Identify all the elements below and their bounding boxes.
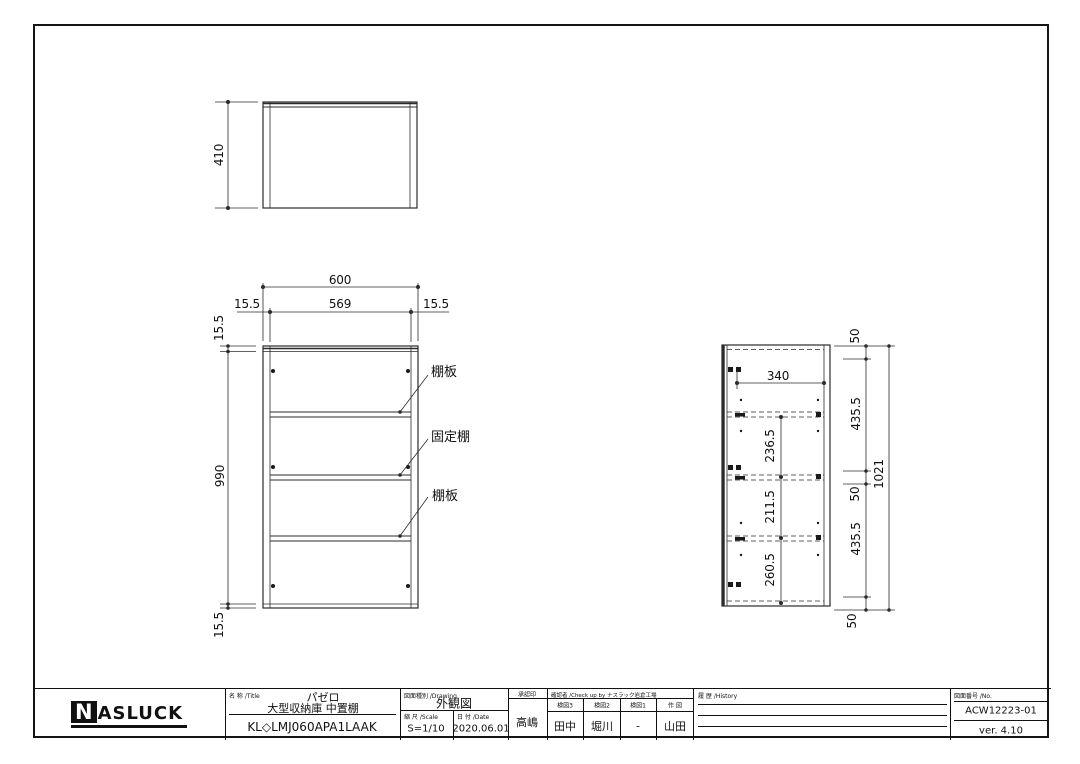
dim-front-inner-width: 569 [329,297,351,311]
title-block-divider [508,698,547,699]
dim-side-segment-lower: 435.5 [849,522,863,555]
title-block-divider [656,698,657,740]
title-block-divider [954,720,1048,721]
label-shelf-lower: 棚板 [432,485,458,504]
title-block-divider [583,698,584,740]
history-row-line [698,715,947,716]
check-col-value: 田中 [554,718,576,734]
front-view-outline [263,346,418,608]
drawing-version: ver. 4.10 [979,726,1023,737]
title-block-divider [954,701,1048,702]
history-row-line [698,726,947,727]
drawing-type: 外観図 [436,695,472,712]
drawing-no: ACW12223-01 [965,706,1037,717]
dim-side-segment-top: 50 [848,329,862,344]
approval-name: 高嶋 [516,714,538,730]
dim-front-overall-height: 990 [213,465,227,487]
title-block-divider [400,689,401,740]
label-shelf-upper: 棚板 [431,361,457,380]
history-row-line [698,704,947,705]
dim-side-overall-height: 1021 [872,459,886,489]
dim-front-right-thickness: 15.5 [423,297,449,311]
dim-front-top-thickness: 15.5 [212,315,226,341]
dim-front-overall-width: 600 [329,273,351,287]
dim-side-opening-middle: 211.5 [763,490,777,523]
title-block: NASLUCK 名 称 /Title パゼロ 大型収納庫 中置棚 KL◇LMJ0… [33,688,1051,740]
check-col-label: 検図3 [557,701,573,710]
title-block-divider [229,714,396,715]
dim-side-opening-upper: 236.5 [763,429,777,462]
title-block-divider [620,698,621,740]
date-value: 2020.06.01 [452,724,509,735]
check-col-label: 検図1 [630,701,646,710]
dim-side-opening-lower: 260.5 [763,553,777,586]
front-view-dimensions [220,283,449,610]
check-col-label: 検図2 [594,701,610,710]
dim-side-segment-middle: 50 [848,487,862,502]
name-label: 名 称 /Title [229,691,260,700]
side-view-dimensions [735,344,895,612]
dim-side-segment-upper: 435.5 [849,397,863,430]
front-view-shelves [270,412,411,541]
title-block-divider [693,689,694,740]
top-view-outline [263,102,417,208]
model-code: KL◇LMJ060APA1LAAK [247,720,376,734]
front-view-leader-lines [398,375,428,538]
dim-front-bottom-thickness: 15.5 [212,612,226,638]
dim-side-pin-pitch: 340 [767,369,789,383]
check-col-value: 堀川 [591,718,613,734]
check-col-value: 山田 [664,718,686,734]
front-view-shelf-pins [271,369,410,588]
title-block-divider [547,711,693,712]
check-col-label: 作 図 [668,701,682,710]
scale-label: 縮 尺 /Scale [404,712,438,721]
dim-front-left-thickness: 15.5 [234,297,260,311]
scale-value: S=1/10 [407,724,444,735]
dim-side-segment-bottom: 50 [845,614,859,629]
company-logo: NASLUCK [71,701,187,728]
date-label: 日 付 /Date [457,712,489,721]
drawing-sheet: 410 600 15.5 569 15.5 15.5 990 15.5 棚板 固… [0,0,1080,764]
drawing-no-label: 図面番号 /No. [954,691,992,700]
label-fixed-shelf: 固定棚 [431,426,470,445]
drawing-canvas [0,0,1080,764]
check-col-value: - [636,720,640,733]
title-block-divider [950,689,951,740]
history-label: 履 歴 /History [698,691,737,700]
title-block-divider [400,710,508,711]
logo-n-mark: N [71,701,97,723]
title-block-divider [225,689,226,740]
title-block-divider [547,689,548,740]
dim-top-view-height: 410 [212,144,226,166]
